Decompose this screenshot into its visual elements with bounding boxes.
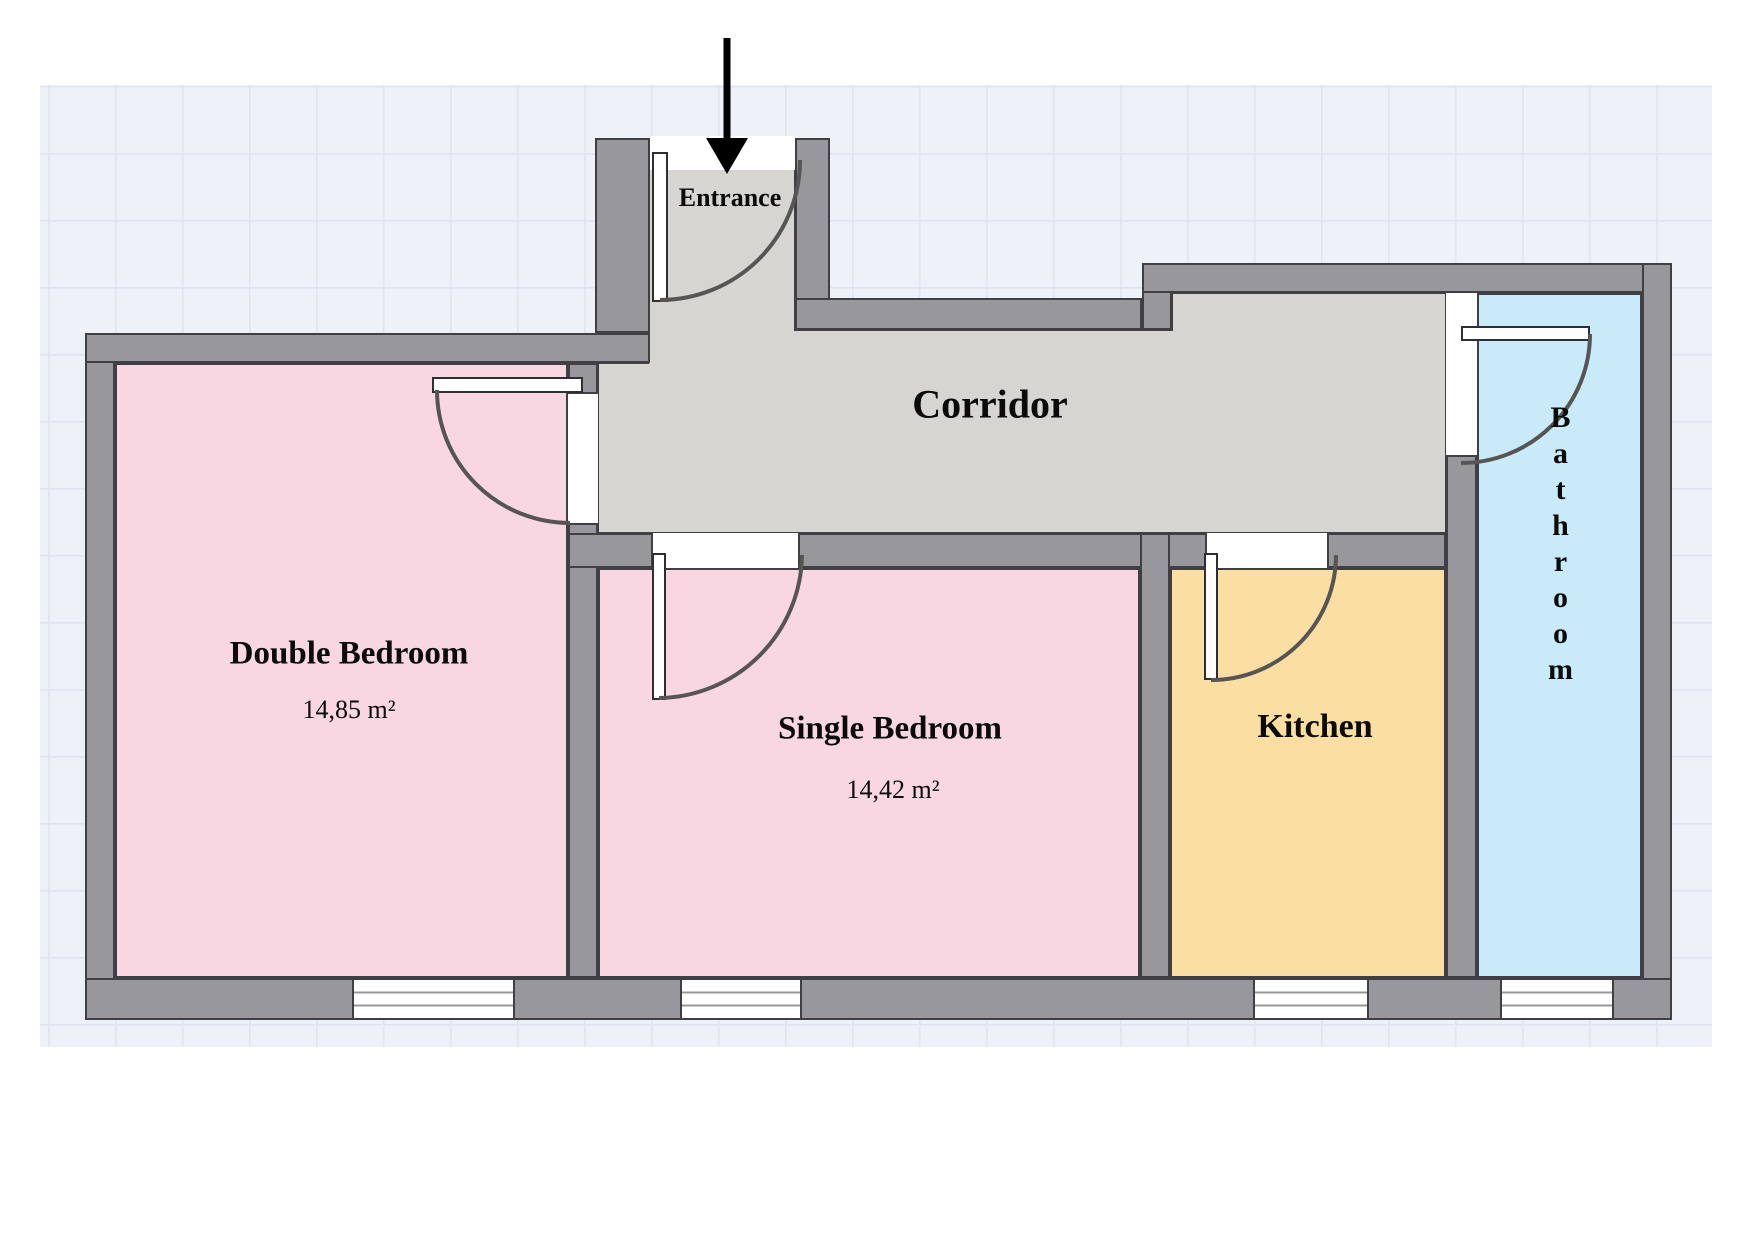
wall-exterior-bottom — [85, 978, 1672, 1020]
single-bedroom-window — [680, 978, 802, 1020]
wall-exterior-top-left — [85, 333, 650, 363]
single-bedroom-area: 14,42 m² — [846, 775, 939, 805]
wall-exterior-right — [1642, 263, 1672, 1020]
corridor-floor — [0, 0, 1754, 1241]
single-bedroom-label: Single Bedroom — [778, 711, 1002, 748]
bathroom-label: Bathroom — [1543, 401, 1577, 689]
entrance-label: Entrance — [679, 183, 782, 213]
kitchen-door-leaf — [1204, 553, 1218, 680]
wall-bedroom-divider-lower — [568, 523, 598, 978]
bathroom-door-opening — [1446, 293, 1477, 455]
single-bedroom-door-leaf — [652, 553, 666, 700]
double-bedroom-area: 14,85 m² — [302, 695, 395, 725]
kitchen-label: Kitchen — [1257, 708, 1372, 746]
bathroom-window — [1500, 978, 1614, 1020]
wall-exterior-left — [85, 333, 115, 1020]
wall-exterior-top-right — [1142, 263, 1672, 293]
entrance-door-opening — [650, 136, 795, 170]
entrance-door-leaf — [652, 152, 668, 302]
corridor-floor-shape — [598, 168, 1446, 533]
double-bedroom-window — [352, 978, 515, 1020]
corridor-label: Corridor — [912, 381, 1068, 428]
double-bedroom-door-leaf — [432, 377, 583, 393]
kitchen-door-opening — [1207, 533, 1327, 568]
wall-corridor-top — [795, 298, 1142, 330]
bathroom-door-leaf — [1461, 326, 1590, 341]
wall-corridor-bottom-c — [1327, 533, 1446, 568]
floor-plan-canvas: Entrance Corridor Double Bedroom 14,85 m… — [0, 0, 1754, 1241]
wall-entrance-right — [795, 138, 830, 300]
wall-entrance-left — [595, 138, 650, 333]
wall-kitchen-divider — [1140, 533, 1170, 978]
double-bedroom-door-opening — [568, 394, 598, 523]
single-bedroom-door-opening — [653, 533, 798, 568]
double-bedroom-label: Double Bedroom — [230, 636, 469, 673]
wall-corridor-bottom-a — [568, 533, 653, 568]
wall-bathroom-west — [1446, 455, 1477, 978]
kitchen-window — [1253, 978, 1369, 1020]
